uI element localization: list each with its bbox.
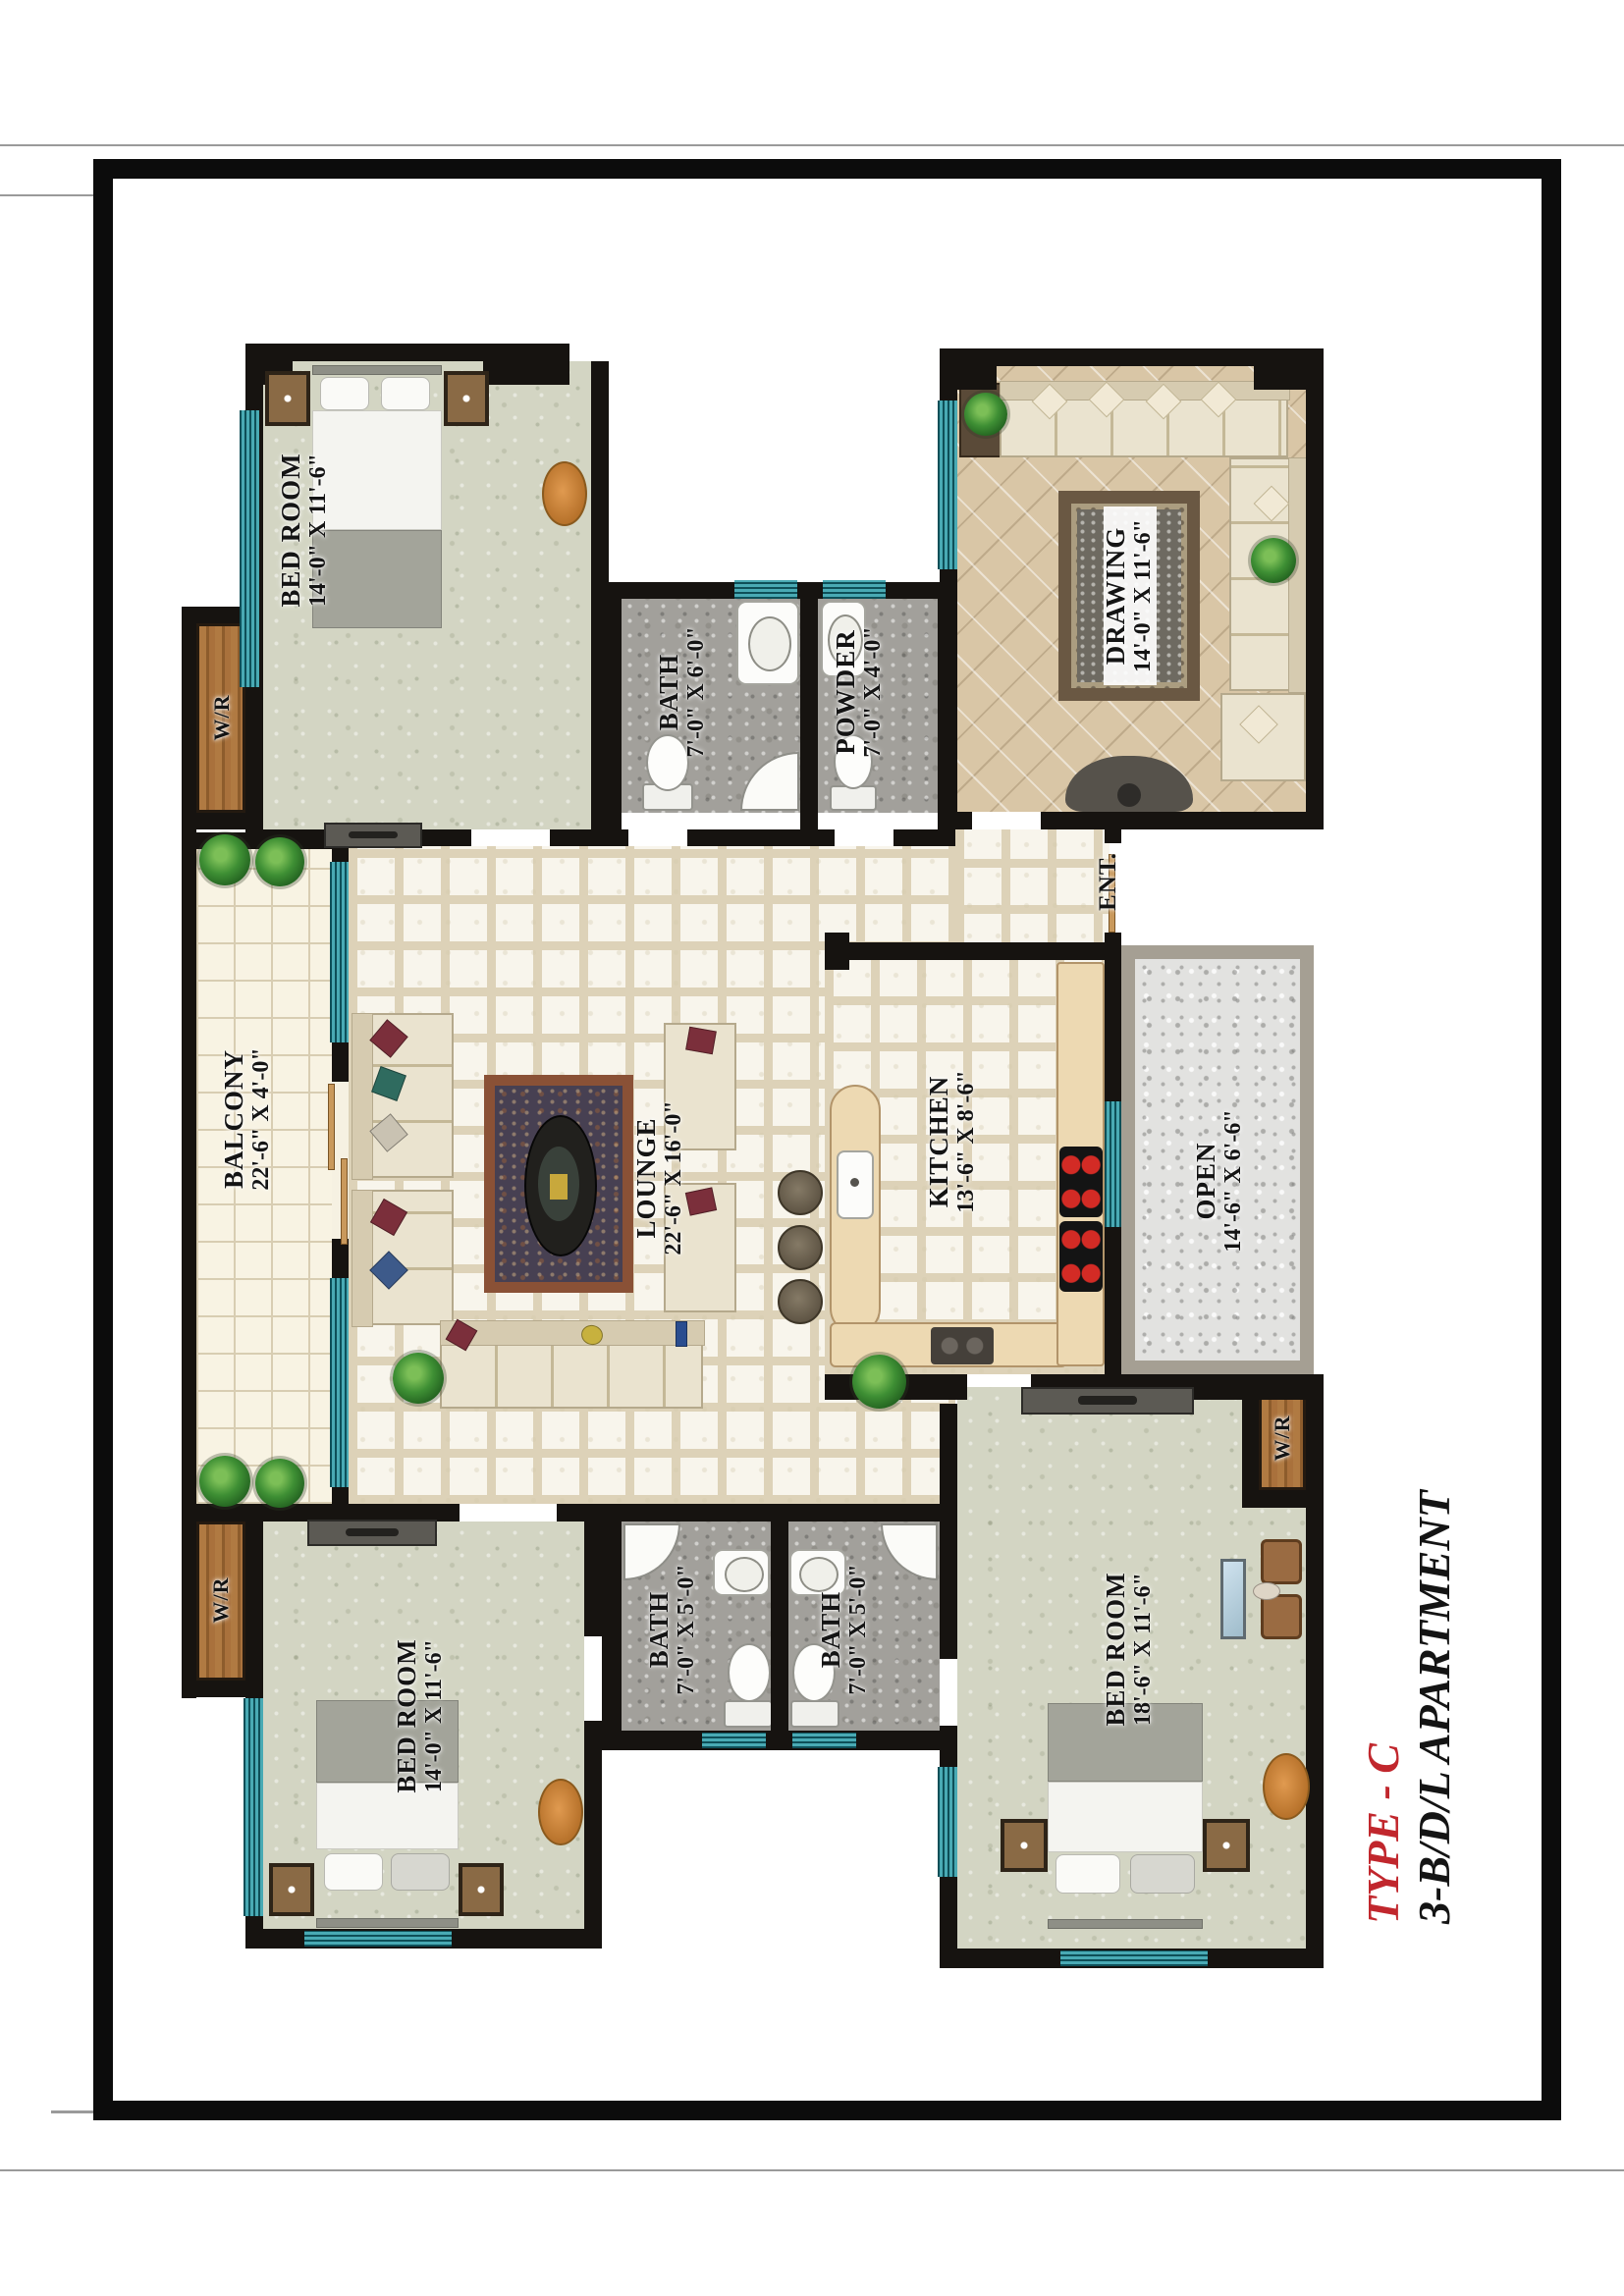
window [938,400,957,569]
dresser-handle [349,831,398,838]
wall [771,1522,788,1731]
plant [255,837,304,886]
plant [255,1459,304,1508]
mirror [1220,1559,1246,1639]
room-name: BATH [817,1591,845,1669]
sink [725,1557,764,1592]
label-wardrobe-bottom-left: W/R [209,1556,233,1644]
wall [182,813,263,829]
room-dims: 7'-0" X 5'-0" [675,1564,700,1694]
entrance-label: ENT. [1095,852,1121,911]
headboard [1048,1919,1203,1929]
window [702,1733,766,1748]
wall [687,829,835,846]
room-name: BATH [645,1591,674,1669]
plant [199,834,250,885]
wall-jamb [483,344,569,385]
room-dims: 18'-6" X 11'-6" [1131,1573,1157,1726]
headboard [312,365,442,375]
label-wardrobe-top-left: W/R [210,673,234,762]
room-name: POWDER [832,629,860,755]
room-dims: 7'-0" X 5'-0" [846,1564,872,1694]
room-dims: 14'-0" X 11'-6" [422,1639,448,1792]
armchair-pillow [685,1027,717,1054]
round-pouf [778,1279,823,1324]
room-dims: 14'-6" X 6'-6" [1221,1109,1247,1252]
round-pouf [778,1170,823,1215]
room-dims: 13'-6" X 8'-6" [954,1070,980,1212]
wall [584,1522,602,1636]
wall [550,829,609,846]
window [938,1767,957,1877]
page-rule-bottom [0,2169,1624,2171]
title-block: TYPE - C 3-B/D/L APARTMENT [1354,1414,1464,1924]
wall [591,361,609,846]
room-name: BED ROOM [393,1638,421,1792]
room-label-bedroom-bottom-left: BED ROOM 14'-0" X 11'-6" [391,1578,450,1853]
wall [1306,366,1324,829]
tv-console-knob [1117,783,1141,807]
room-label-bedroom-bottom-right: BED ROOM 18'-6" X 11'-6" [1100,1502,1159,1796]
wall [182,607,196,1698]
window [244,1698,263,1916]
wardrobe-label: W/R [1271,1415,1294,1462]
dressing-stool [542,461,587,526]
window [330,862,349,1042]
wall-jamb [332,1042,349,1082]
round-pouf [778,1225,823,1270]
toilet-tank [724,1700,773,1728]
wall [609,829,628,846]
room-name: LOUNGE [632,1117,661,1238]
bed-pillow [1056,1854,1120,1894]
page-rule-top [0,144,1624,146]
wall [609,582,622,846]
room-name: KITCHEN [925,1076,953,1208]
dresser-handle [1078,1396,1137,1405]
nightstand [1203,1819,1250,1872]
label-entrance: ENT. [1095,834,1120,929]
window [734,580,797,599]
dressing-stool [538,1779,583,1845]
wall [893,829,955,846]
plant [852,1355,906,1409]
window [1060,1950,1208,1966]
stove-burners [1059,1221,1103,1292]
bed-pillow [324,1853,383,1891]
wall [182,1681,263,1697]
room-label-bedroom-top-left: BED ROOM 14'-0" X 11'-6" [274,398,335,663]
nightstand [269,1863,314,1916]
nightstand [1001,1819,1048,1872]
nightstand [459,1863,504,1916]
room-label-bath-bottom-left: BATH 7'-0" X 5'-0" [646,1517,699,1742]
room-label-powder: POWDER 7'-0" X 4'-0" [835,574,884,810]
wall [584,1721,602,1934]
room-name: BED ROOM [1102,1572,1130,1726]
room-dims: 14'-0" X 11'-6" [1131,519,1157,672]
room-dims: 22'-6" X 4'-0" [249,1047,275,1190]
wardrobe-label: W/R [209,1577,233,1624]
wardrobe-label: W/R [210,695,234,741]
bed-pillow [381,377,430,410]
room-label-kitchen: KITCHEN 13'-6" X 8'-6" [925,1019,980,1264]
plant [1251,538,1296,583]
balcony-door-leaf [341,1158,348,1245]
room-name: BATH [655,654,683,731]
window [1105,1101,1121,1227]
plant [199,1456,250,1507]
room-name: DRAWING [1102,527,1130,666]
room-label-lounge: LOUNGE 22'-6" X 16'-0" [631,1050,688,1306]
wall [1242,1490,1324,1508]
window [304,1931,452,1947]
wall [940,812,972,829]
room-label-bath-bottom-right: BATH 7'-0" X 5'-0" [818,1517,871,1742]
bed-pillow [1130,1854,1195,1894]
sofa-backrest [352,1190,373,1327]
kitchen-appliance [931,1327,994,1364]
room-name: BALCONY [220,1049,248,1189]
wall-jamb [825,933,849,970]
wall [602,1504,622,1750]
room-label-bath-top: BATH 7'-0" X 6'-0" [655,574,710,810]
plan-type-title: TYPE - C [1358,1743,1409,1924]
window [330,1278,349,1487]
floor-plan-page: BED ROOM 14'-0" X 11'-6" BATH 7'-0" X 6'… [0,0,1624,2296]
coffee-table-tray [550,1174,568,1200]
wall [940,1404,957,1659]
room-dims: 7'-0" X 6'-0" [684,626,710,757]
wall [825,942,1121,960]
label-wardrobe-bottom-right: W/R [1271,1394,1294,1482]
room-label-balcony: BALCONY 22'-6" X 4'-0" [221,996,274,1242]
room-label-open: OPEN 14'-6" X 6'-6" [1193,1063,1246,1299]
sink [748,616,791,671]
window [240,410,259,687]
headboard [316,1918,459,1928]
room-dims: 14'-0" X 11'-6" [306,454,332,607]
balcony-door-leaf [328,1084,335,1170]
toilet [728,1643,771,1702]
wall [1306,1374,1324,1968]
sofa-backrest [440,1320,705,1346]
room-name: OPEN [1192,1143,1220,1220]
room-name: BED ROOM [277,453,305,607]
plant [964,393,1007,436]
dresser-handle [346,1528,399,1536]
wall [800,599,818,829]
chair [1261,1539,1302,1584]
room-label-drawing: DRAWING 14'-0" X 11'-6" [1101,478,1158,714]
chair [1261,1594,1302,1639]
room-dims: 7'-0" X 4'-0" [861,626,887,757]
faucet [850,1178,859,1187]
plan-subtitle: 3-B/D/L APARTMENT [1409,1490,1460,1924]
room-dims: 22'-6" X 16'-0" [662,1100,687,1255]
sofa-backrest [1288,457,1308,693]
dressing-stool [1263,1753,1310,1820]
wall-jamb [332,1239,349,1278]
plant [393,1353,444,1404]
wall [1041,812,1324,829]
sofa-decor [676,1321,687,1347]
small-table [1253,1582,1280,1600]
stove-burners [1059,1147,1103,1217]
entry-corridor-floor [955,829,1110,960]
nightstand [444,371,489,426]
bed-pillow [391,1853,450,1891]
